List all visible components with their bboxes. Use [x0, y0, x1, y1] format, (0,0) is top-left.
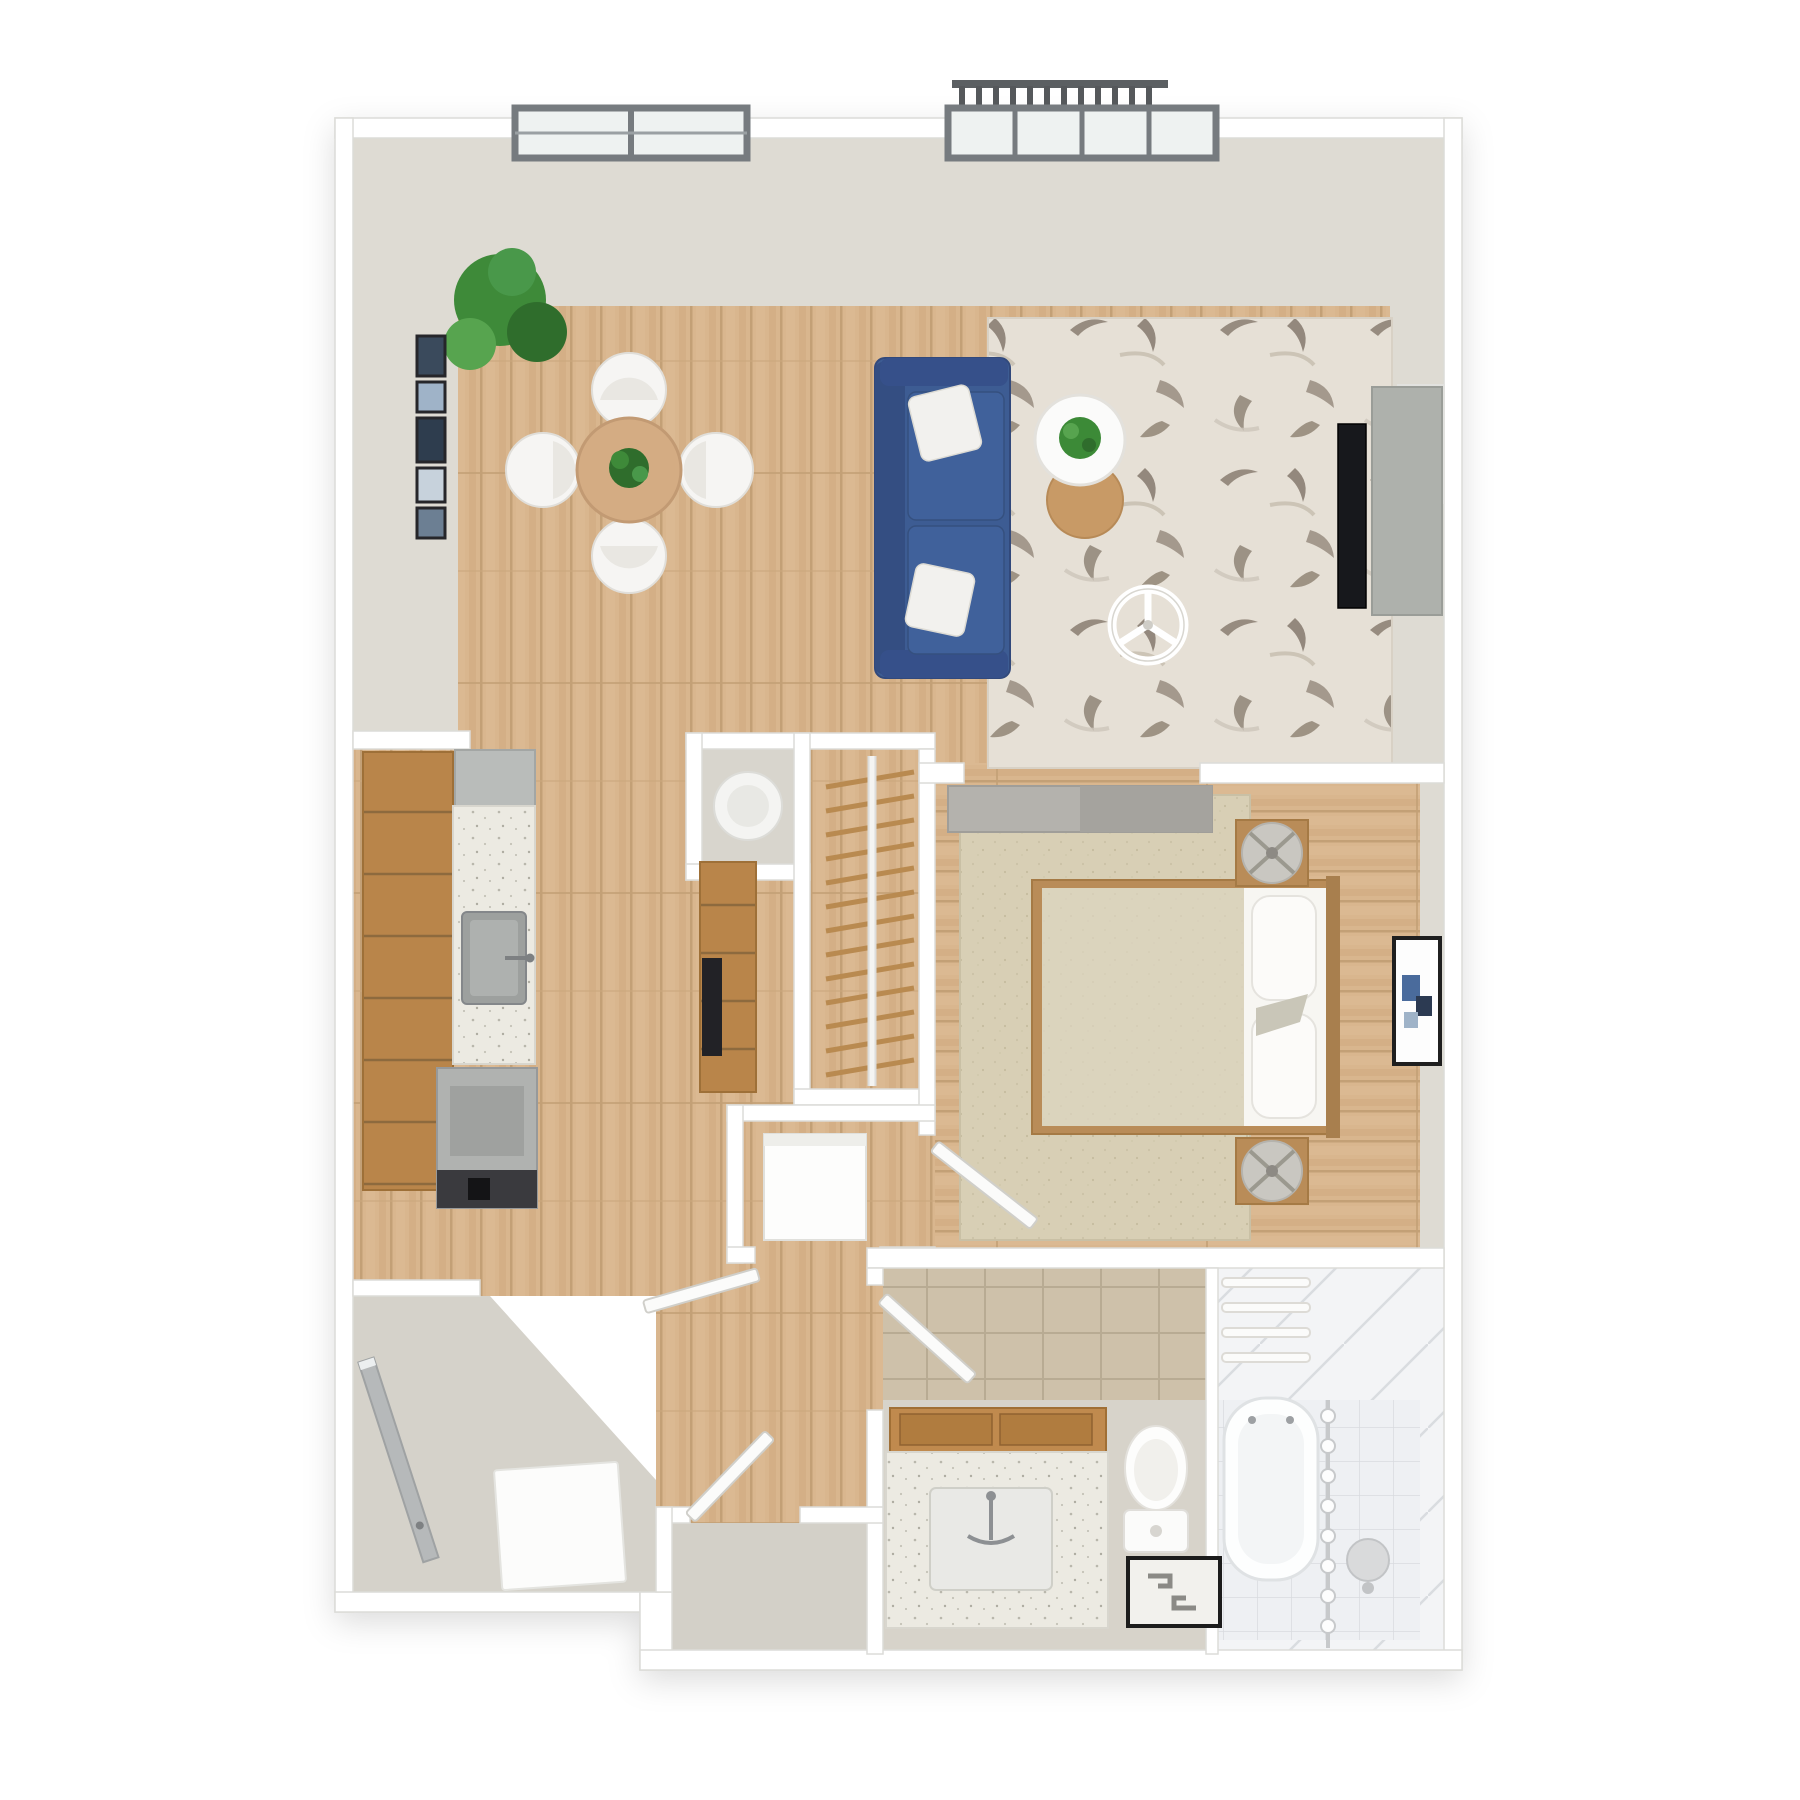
floor-plan-canvas: { "meta": { "artwork": "3D top-down floo…	[0, 0, 1800, 1800]
sliding-door-shaded-half	[1080, 786, 1212, 832]
headboard	[1326, 876, 1340, 1138]
bed	[1032, 876, 1340, 1138]
bedroom-bathroom-wall	[867, 1248, 1444, 1268]
toilet-icon	[1124, 1426, 1188, 1552]
dining-window	[515, 108, 747, 158]
hall-bedroom-wall	[919, 749, 935, 1135]
refrigerator-icon	[455, 750, 535, 806]
pantry-cabinet	[700, 862, 756, 1092]
floor-plan-svg	[0, 0, 1800, 1800]
dining-chair-north	[592, 353, 666, 427]
bedroom-top-wall-left	[919, 763, 964, 783]
washer-icon	[714, 772, 782, 840]
sofa	[875, 358, 1010, 678]
gallery-wall-frames	[417, 336, 445, 538]
curtain-ring	[1321, 1409, 1335, 1423]
table-centerpiece-plant	[609, 448, 649, 488]
curtain-ring	[1321, 1439, 1335, 1453]
table-lamp-north	[1242, 823, 1302, 883]
kitchen-bottom-wall	[353, 1280, 480, 1296]
kitchen	[363, 750, 537, 1208]
closet-mid-wall	[794, 733, 810, 1105]
bedroom-top-wall-right	[1200, 763, 1444, 783]
alcove-left-wall	[656, 1507, 672, 1592]
towel-bar	[1222, 1278, 1310, 1287]
storage-alcove-floor	[672, 1523, 867, 1654]
outer-wall-left	[335, 118, 353, 1612]
dining-chair-east	[679, 433, 753, 507]
bed-pillow-top	[1252, 896, 1316, 1000]
utility-closet-bottom-wall-a	[727, 1247, 755, 1263]
picture-frame	[417, 418, 445, 462]
kitchen-top-wall	[353, 731, 470, 749]
utility-cabinet-box	[764, 1134, 866, 1240]
curtain-ring	[1321, 1589, 1335, 1603]
bathtub	[1224, 1398, 1318, 1580]
towel-bar	[1222, 1328, 1310, 1337]
balcony-sliding-door	[948, 108, 1216, 158]
curtain-ring	[1321, 1529, 1335, 1543]
towel-bar	[1222, 1353, 1310, 1362]
utility-closet-top-wall	[727, 1105, 935, 1121]
vanity	[886, 1408, 1108, 1628]
curtain-ring	[1321, 1619, 1335, 1633]
kitchen-sink	[462, 912, 535, 1004]
bath-mat-drain	[1128, 1558, 1220, 1626]
bathroom-left-wall-bottom	[867, 1410, 883, 1654]
door-mat	[494, 1462, 626, 1590]
outer-wall-top	[335, 118, 1462, 138]
coffee-table-plant	[1059, 417, 1101, 459]
built-in-oven-icon	[702, 958, 722, 1056]
bedroom-wall-art	[1394, 938, 1440, 1064]
closet-bottom-wall	[794, 1089, 935, 1105]
outer-wall-bottom-left	[335, 1592, 640, 1612]
media-console	[1372, 387, 1442, 615]
picture-frame	[417, 508, 445, 538]
bathroom-left-wall-top	[867, 1268, 883, 1285]
closet-left-wall	[686, 733, 702, 880]
picture-frame	[417, 382, 445, 412]
curtain-ring	[1321, 1469, 1335, 1483]
hall-south-wood-floor	[656, 1296, 883, 1523]
curtain-ring	[1321, 1559, 1335, 1573]
tv-icon	[1338, 424, 1366, 608]
outer-wall-right	[1444, 118, 1462, 1670]
picture-frame	[417, 468, 445, 502]
range-oven-icon	[437, 1068, 537, 1208]
utility-closet-left-wall	[727, 1105, 743, 1263]
alcove-top-wall-b	[800, 1507, 883, 1523]
dining-chair-south	[592, 519, 666, 593]
towel-bar	[1222, 1303, 1310, 1312]
living-room-rug	[988, 318, 1392, 768]
table-lamp-south	[1242, 1141, 1302, 1201]
outer-wall-bottom-right	[640, 1650, 1462, 1670]
picture-frame	[417, 336, 445, 376]
curtain-ring	[1321, 1499, 1335, 1513]
dining-chair-west	[506, 433, 580, 507]
sofa-pillow-bottom	[904, 562, 976, 637]
